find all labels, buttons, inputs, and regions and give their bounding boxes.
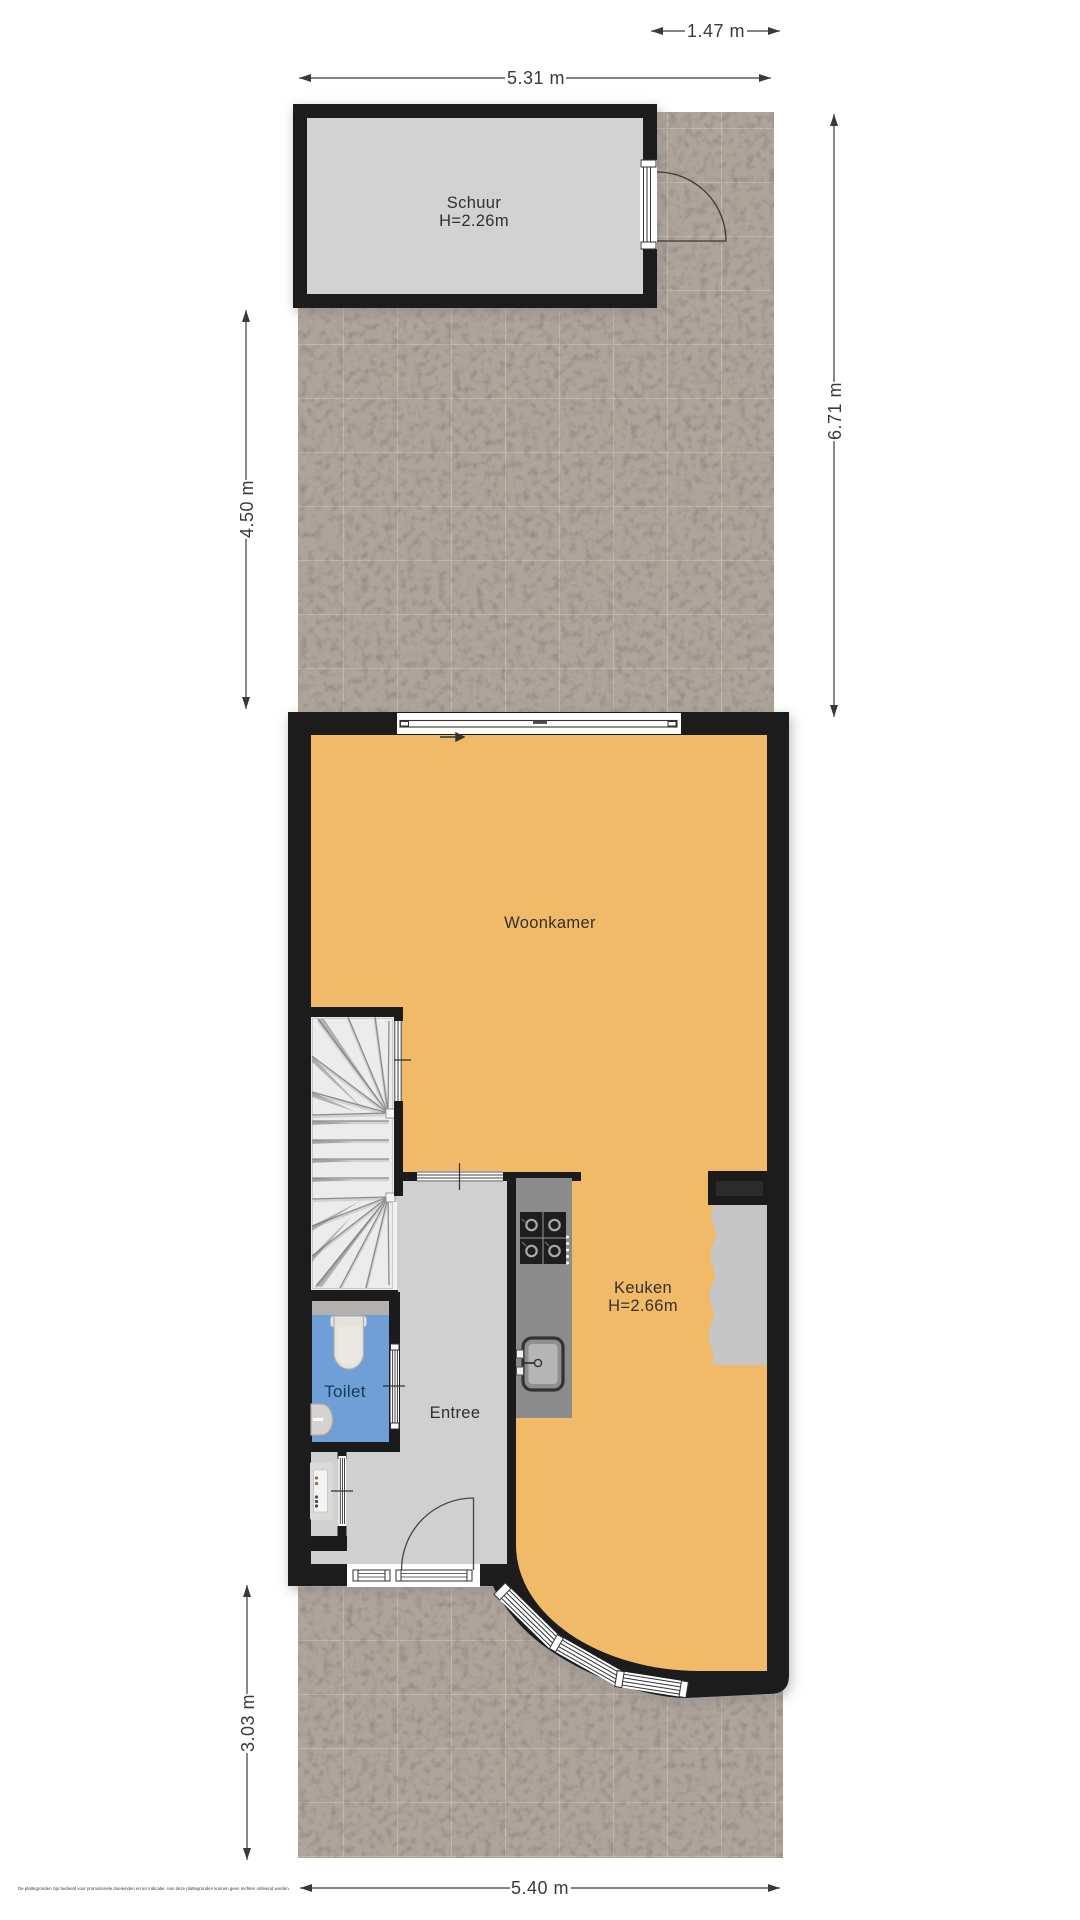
svg-text:Toilet: Toilet <box>324 1382 366 1401</box>
svg-text:Keuken: Keuken <box>614 1279 672 1297</box>
svg-text:Woonkamer: Woonkamer <box>504 914 596 932</box>
svg-text:1.47 m: 1.47 m <box>687 21 745 41</box>
svg-text:De plattegronden zijn bedoeld: De plattegronden zijn bedoeld voor promo… <box>18 1886 290 1891</box>
svg-text:5.40 m: 5.40 m <box>511 1878 569 1898</box>
svg-text:6.71 m: 6.71 m <box>825 382 845 440</box>
svg-text:Entree: Entree <box>430 1404 481 1422</box>
svg-text:H=2.26m: H=2.26m <box>439 212 509 230</box>
svg-text:Schuur: Schuur <box>447 194 502 212</box>
svg-text:H=2.66m: H=2.66m <box>608 1297 678 1315</box>
svg-text:3.03 m: 3.03 m <box>238 1694 258 1752</box>
svg-text:4.50 m: 4.50 m <box>237 480 257 538</box>
svg-text:5.31 m: 5.31 m <box>507 68 565 88</box>
